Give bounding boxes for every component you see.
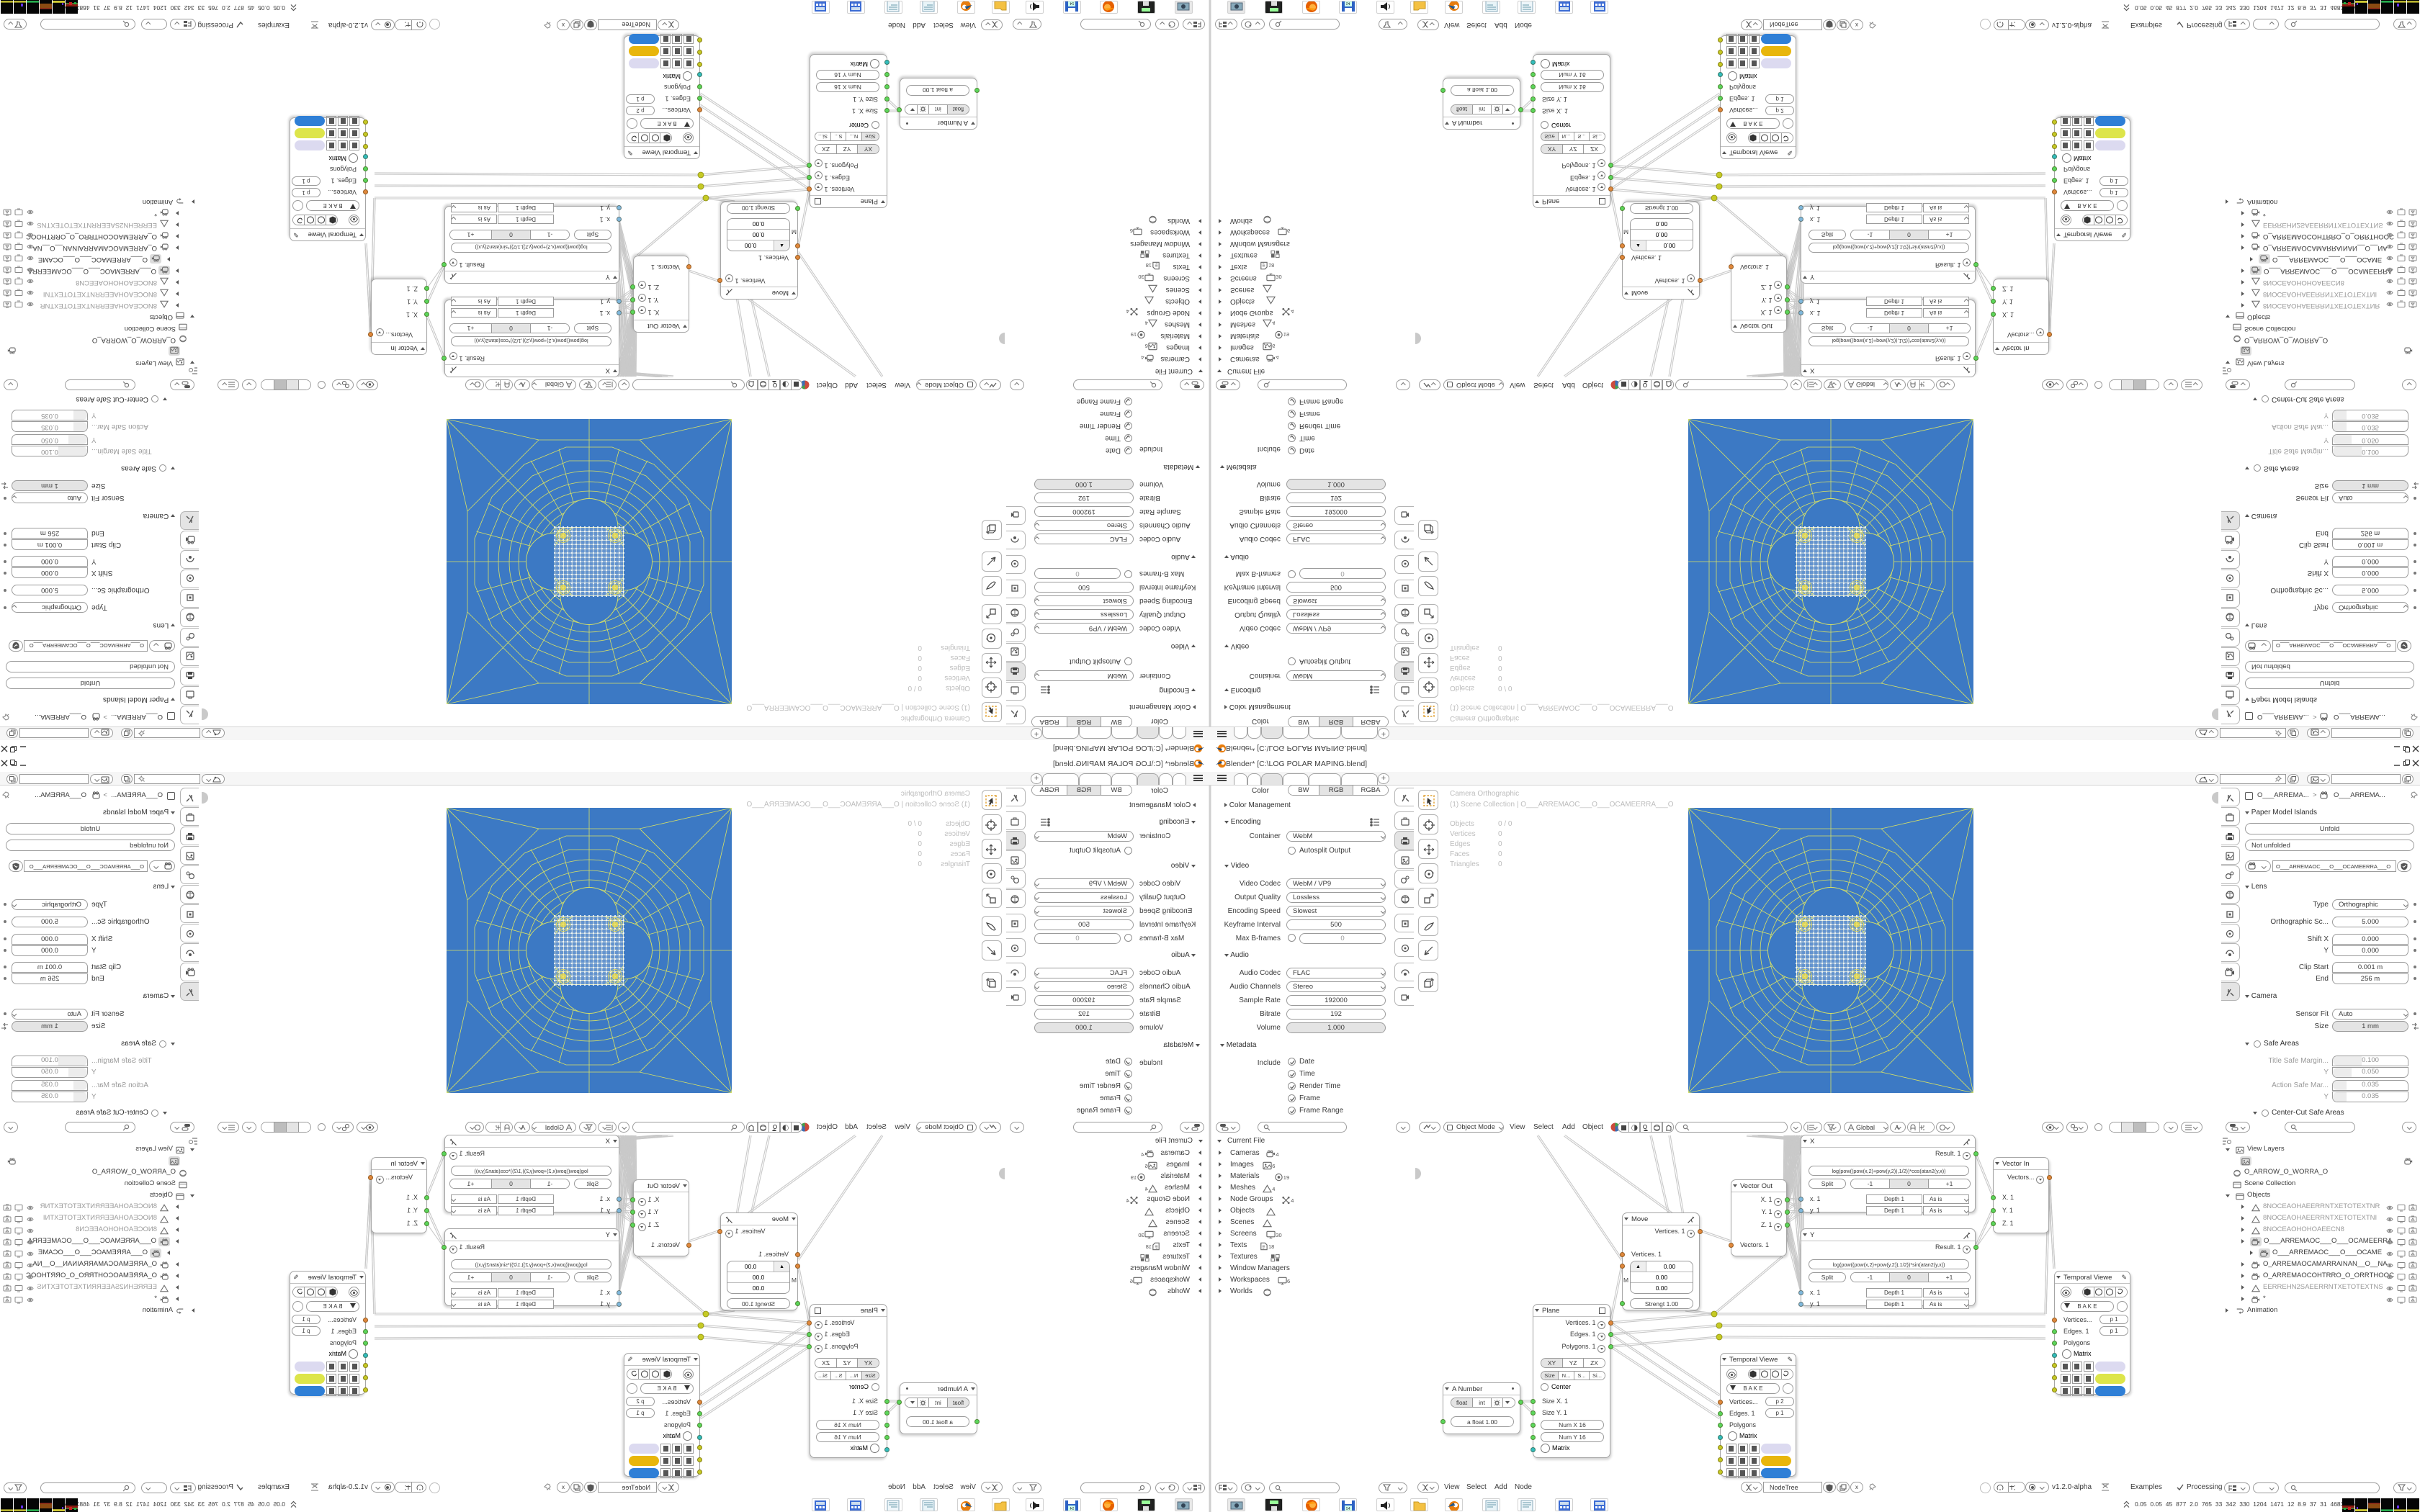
svg-text:54: 54 [1070,1,1074,5]
svg-text:54: 54 [1070,1507,1074,1511]
svg-text:54: 54 [1346,1,1350,5]
svg-text:54: 54 [1346,1507,1350,1511]
